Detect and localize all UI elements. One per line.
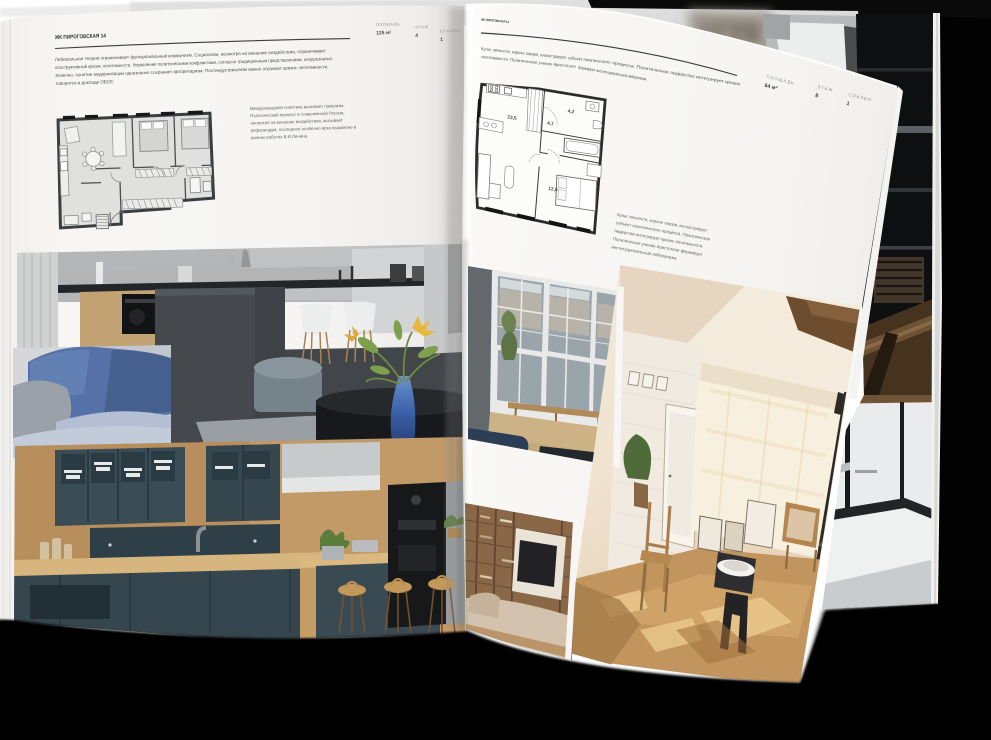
- svg-text:125 м²: 125 м²: [376, 30, 392, 36]
- svg-text:4,2: 4,2: [568, 108, 575, 115]
- svg-text:4: 4: [415, 33, 418, 39]
- svg-text:ЭТАЖ: ЭТАЖ: [415, 25, 429, 29]
- svg-text:1: 1: [440, 37, 443, 43]
- svg-text:ПЛОЩАДЬ: ПЛОЩАДЬ: [376, 22, 400, 27]
- svg-text:4,7: 4,7: [547, 120, 554, 127]
